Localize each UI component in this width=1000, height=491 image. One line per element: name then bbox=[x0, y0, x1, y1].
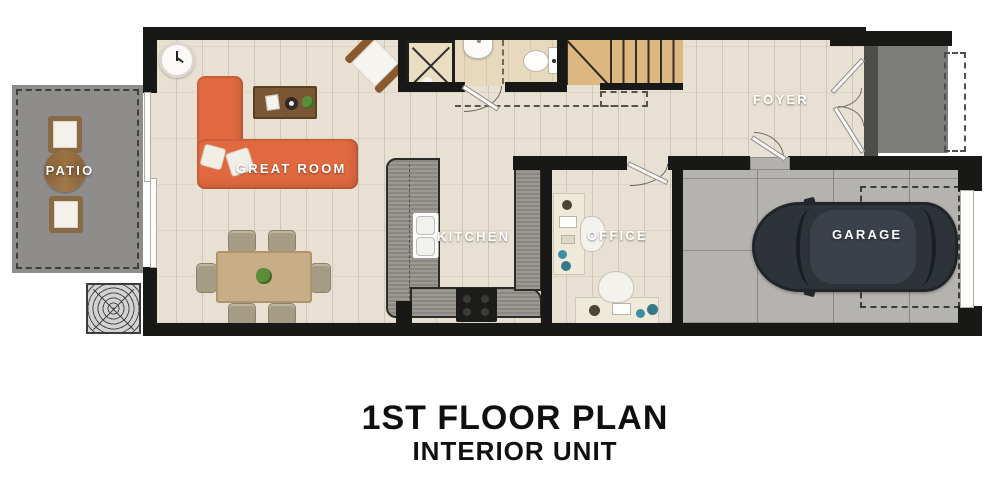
garage-right-wall-stub-bottom bbox=[958, 306, 982, 336]
garage-right-wall-stub-top bbox=[958, 167, 982, 191]
kitchen-sink bbox=[412, 212, 439, 259]
patio-chair-cushion bbox=[54, 201, 78, 228]
burner bbox=[481, 295, 489, 303]
island-end-wall bbox=[396, 301, 412, 323]
toilet-bowl bbox=[523, 50, 549, 72]
wall-clock-icon bbox=[159, 42, 195, 78]
patio-chair-cushion bbox=[53, 121, 77, 148]
car-windshield-line bbox=[796, 208, 828, 286]
bath-wall-bottom-left bbox=[398, 82, 465, 92]
room-label-office: OFFICE bbox=[587, 228, 648, 243]
wall-top bbox=[143, 27, 866, 40]
desk-accessory-teal bbox=[647, 304, 658, 315]
stair-landing-line bbox=[567, 40, 610, 86]
kitchen-office-wall bbox=[541, 156, 552, 336]
staircase bbox=[566, 40, 683, 85]
room-label-kitchen: KITCHEN bbox=[437, 229, 510, 244]
office-chair bbox=[598, 271, 634, 303]
dining-chair bbox=[268, 230, 296, 253]
dining-chair bbox=[196, 263, 217, 293]
desk-plant bbox=[589, 305, 600, 316]
wall-bottom bbox=[143, 323, 982, 336]
car-rear-window-line bbox=[904, 208, 936, 286]
plan-subtitle: INTERIOR UNIT bbox=[0, 436, 1000, 467]
sliding-door-panel bbox=[144, 92, 151, 182]
patio-chair bbox=[48, 116, 82, 153]
porch-dashed-outline bbox=[944, 52, 966, 152]
entry-porch bbox=[878, 46, 948, 153]
coffee-table bbox=[253, 86, 317, 119]
desk-laptop bbox=[612, 303, 631, 315]
sink-basin bbox=[416, 216, 435, 235]
coffee-table-book bbox=[265, 94, 280, 111]
wall-left-upper bbox=[143, 27, 157, 93]
dining-chair bbox=[228, 230, 256, 253]
room-label-great-room: GREAT ROOM bbox=[236, 161, 347, 176]
dining-centerpiece-plant bbox=[256, 268, 272, 284]
car bbox=[752, 202, 958, 292]
stairs-bottom-wall bbox=[600, 83, 683, 90]
burner bbox=[463, 308, 471, 316]
car-side-mirror bbox=[803, 197, 815, 207]
bath-stairs-divider-wall bbox=[557, 27, 567, 92]
desk-plant bbox=[562, 200, 572, 210]
sliding-door-panel bbox=[150, 178, 157, 268]
plan-title: 1ST FLOOR PLAN bbox=[0, 399, 1000, 438]
coffee-table-tray-dot bbox=[289, 101, 294, 106]
room-label-foyer: FOYER bbox=[753, 92, 809, 107]
office-garage-wall bbox=[672, 156, 683, 336]
desk-accessory-teal bbox=[558, 250, 567, 259]
ac-unit-icon bbox=[86, 283, 141, 334]
coffee-table-plant bbox=[302, 96, 314, 109]
garage-wall-top-right bbox=[788, 156, 982, 170]
desk-book bbox=[561, 235, 575, 244]
floor-plan-canvas: PATIO GREAT ROOM KITCHEN bbox=[0, 0, 1000, 491]
dining-chair bbox=[310, 263, 331, 293]
patio-chair bbox=[49, 196, 83, 233]
burner bbox=[481, 308, 489, 316]
desk-accessory-teal bbox=[636, 309, 645, 318]
sink-basin bbox=[416, 237, 435, 256]
flush-button bbox=[552, 59, 556, 63]
desk-laptop bbox=[559, 216, 577, 228]
range-stove bbox=[456, 288, 497, 322]
bath-divider-dashed bbox=[502, 40, 504, 84]
overhead-dashed-box bbox=[600, 91, 648, 107]
room-label-garage: GARAGE bbox=[832, 227, 902, 242]
entry-door-frame-wall bbox=[864, 46, 878, 156]
garage-door-panel bbox=[960, 190, 974, 308]
burner bbox=[463, 295, 471, 303]
office-wall-top-left bbox=[513, 156, 627, 170]
wall-top-porch bbox=[830, 31, 952, 46]
room-label-patio: PATIO bbox=[30, 163, 110, 178]
kitchen-right-counter bbox=[514, 167, 542, 291]
stair-treads bbox=[610, 40, 685, 85]
desk-accessory-teal bbox=[561, 261, 571, 271]
